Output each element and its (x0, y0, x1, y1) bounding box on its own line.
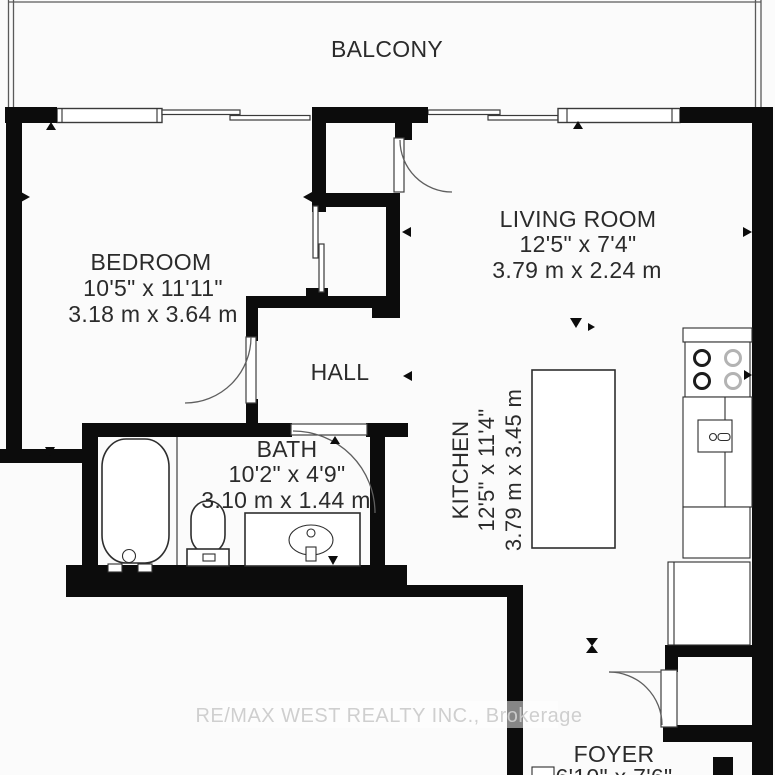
window-left (57, 109, 162, 123)
bathtub-body (102, 439, 169, 563)
wall-entry-closet-bottom (663, 725, 773, 742)
bedroom-dims-metric: 3.18 m x 3.64 m (68, 301, 237, 327)
counter-top-edge (683, 328, 752, 342)
bedroom-label: BEDROOM (91, 249, 212, 275)
watermark-text: RE/MAX WEST REALTY INC., Brokerage (195, 705, 582, 727)
vanity-faucet (307, 529, 315, 537)
vanity-drawer (306, 547, 316, 561)
wall-fridge-closet-divider (665, 645, 753, 657)
kitchen-faucet-spout (718, 434, 730, 441)
wall-divider-right-thick (372, 296, 400, 318)
slider-right-a (428, 110, 500, 115)
floor-plan-drawing: BALCONY BEDROOM 10'5" x 11'11" 3.18 m x … (0, 0, 775, 775)
bath-label: BATH (257, 436, 318, 462)
living-room-dims-imperial: 12'5" x 7'4" (520, 231, 637, 257)
wall-foyer-left (507, 585, 523, 775)
closet-slider-panel-a (313, 206, 318, 258)
bath-dims-imperial: 10'2" x 4'9" (229, 461, 346, 487)
kitchen-label: KITCHEN (448, 421, 473, 520)
slider-left-a (162, 110, 240, 115)
floor-plan-page: BALCONY BEDROOM 10'5" x 11'11" 3.18 m x … (0, 0, 775, 775)
kitchen-dims-metric: 3.79 m x 3.45 m (501, 389, 526, 551)
bedroom-dims-imperial: 10'5" x 11'11" (83, 275, 223, 301)
wall-bath-top-left (82, 423, 292, 437)
bathtub (102, 439, 169, 572)
wall-hall-column (306, 288, 328, 308)
kitchen-island (532, 370, 615, 548)
balcony-label: BALCONY (331, 36, 443, 62)
hall-label: HALL (311, 359, 370, 385)
living-room-label: LIVING ROOM (500, 206, 657, 232)
wall-bedroom-door-top (246, 296, 258, 341)
closet-door-leaf (394, 138, 404, 192)
window-right (558, 109, 680, 123)
wall-hall-right (386, 200, 400, 308)
wall-right (752, 107, 773, 775)
living-room-dims-metric: 3.79 m x 2.24 m (492, 257, 661, 283)
bathtub-drain (123, 550, 136, 563)
bathroom-vanity (245, 513, 360, 566)
bathtub-foot-right (138, 564, 152, 572)
wall-bottom-step (400, 585, 523, 597)
kitchen-dims-imperial: 12'5" x 11'4" (474, 409, 499, 532)
bath-dims-metric: 3.10 m x 1.44 m (201, 487, 370, 513)
wall-closet-right-top (395, 120, 412, 140)
wall-entry-stub (713, 757, 733, 775)
stove-burner-4 (726, 374, 741, 389)
fridge (668, 562, 750, 645)
stove-burner-3 (726, 351, 741, 366)
stove-burner-1 (695, 351, 710, 366)
toilet-button (203, 554, 215, 561)
kitchen-faucet-base (710, 434, 717, 441)
wall-left (6, 107, 22, 463)
kitchen-cabinet (683, 507, 750, 558)
bathtub-foot-left (108, 564, 122, 572)
slider-right-b (488, 116, 558, 121)
foyer-dims-imperial: 6'10" x 7'6" (556, 764, 673, 775)
stove (685, 342, 750, 397)
entry-door-partial (532, 767, 554, 775)
slider-left-b (230, 116, 310, 121)
bath-door-leaf (291, 424, 367, 435)
bedroom-door-leaf (246, 337, 256, 403)
wall-left-jog (0, 449, 84, 463)
wall-entry-closet-left-upper (665, 645, 678, 672)
foyer-closet-door-leaf (661, 670, 677, 727)
stove-burner-2 (695, 374, 710, 389)
closet-slider-panel-b (319, 244, 324, 292)
